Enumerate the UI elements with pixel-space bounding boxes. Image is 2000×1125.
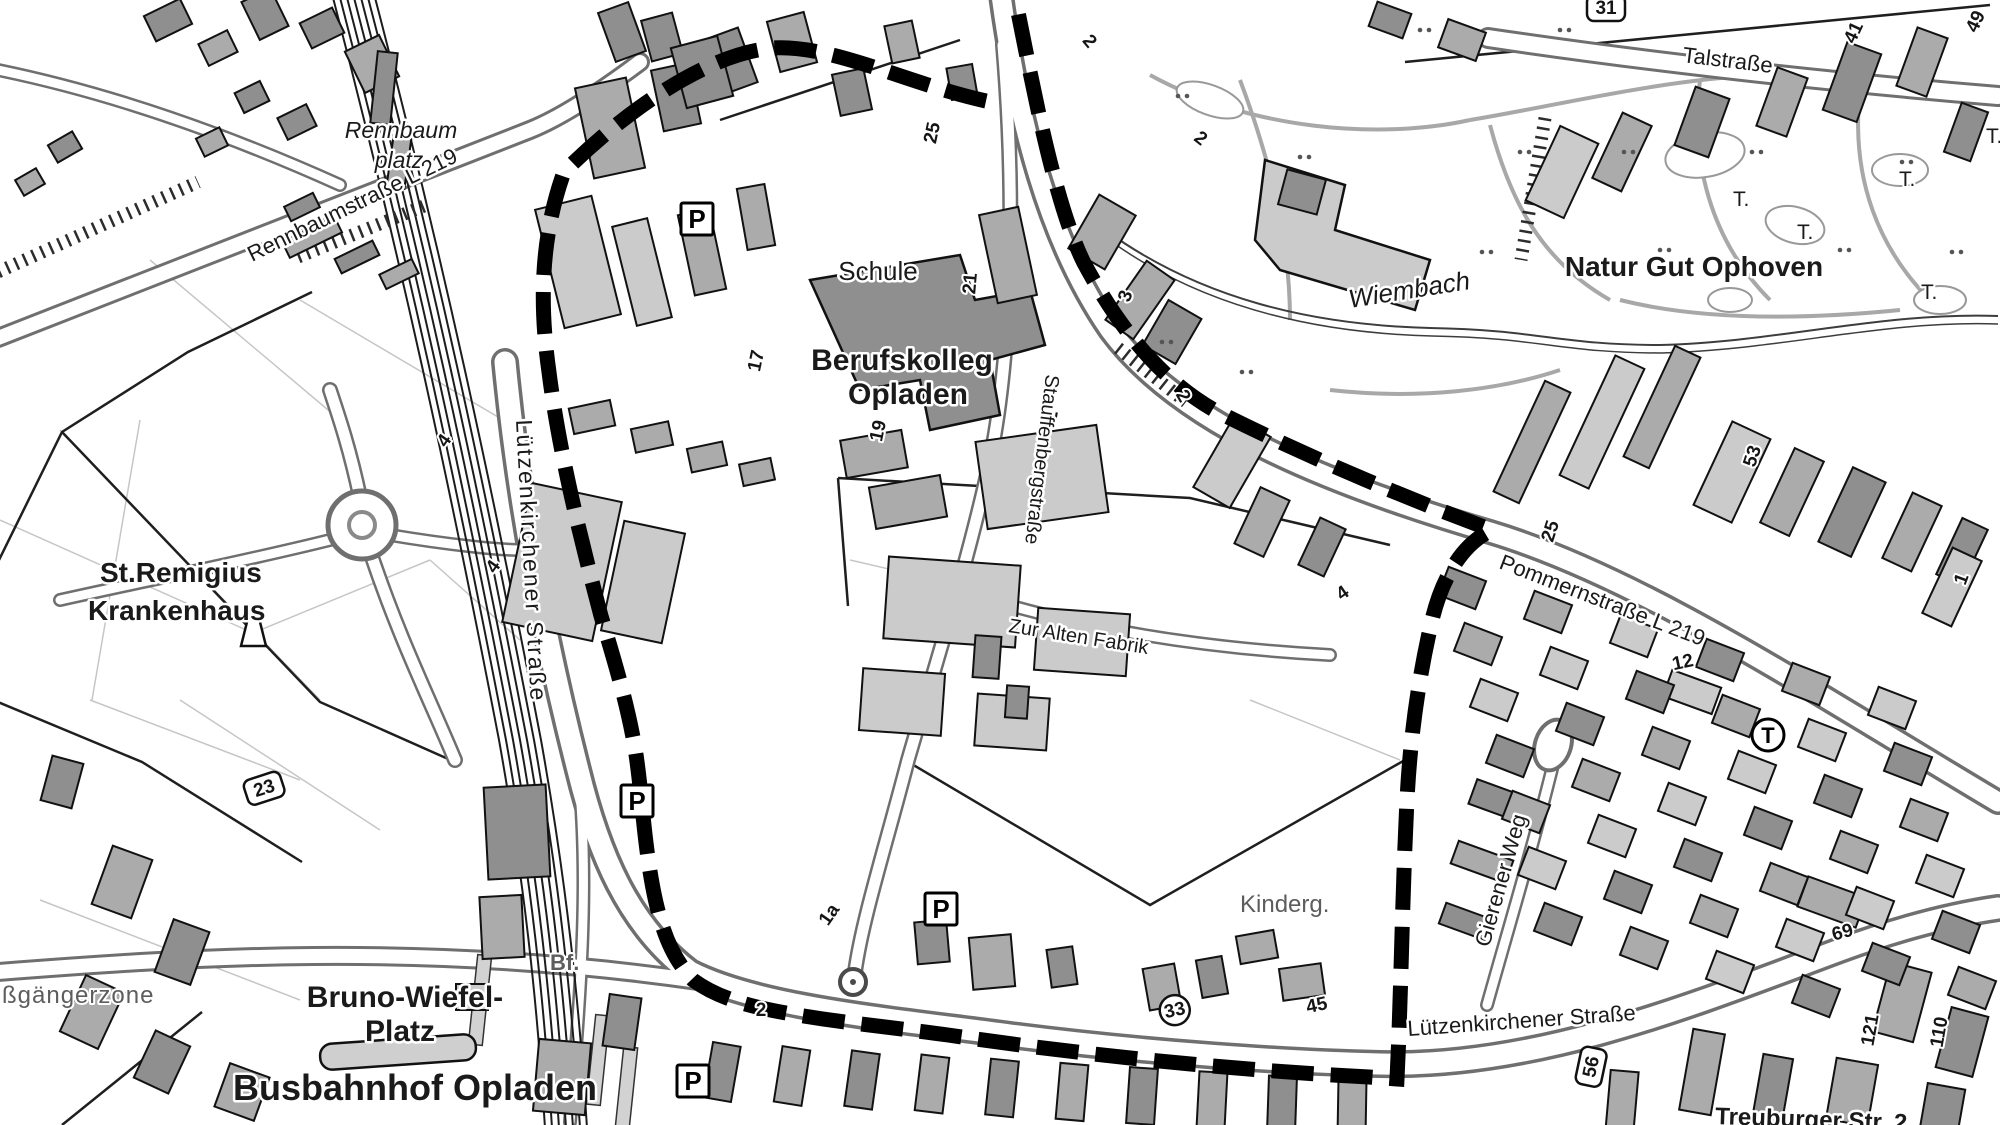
- building: [1267, 1076, 1297, 1125]
- label-fussgaengerzone: ßgängerzone: [2, 982, 154, 1009]
- label-bruno-wiefel-2: Platz: [365, 1015, 435, 1048]
- label-bahnhof: Bf.: [550, 950, 579, 975]
- building: [1196, 956, 1228, 998]
- tree-dot: [1631, 150, 1636, 155]
- label-rennbaumplatz-1: Rennbaum: [345, 117, 458, 143]
- parking-letter: P: [684, 1066, 701, 1096]
- roundabout-mini: [840, 969, 866, 995]
- label-kindergarten: Kinderg.: [1240, 891, 1329, 918]
- tree-dot: [1759, 150, 1764, 155]
- house-number-text: 19: [866, 418, 891, 443]
- tree-dot: [1950, 250, 1955, 255]
- tree-dot: [1176, 94, 1181, 99]
- building: [1197, 1071, 1228, 1125]
- parking-icon: P: [621, 785, 653, 817]
- tram-stop-letter: T: [1761, 723, 1775, 748]
- building: [1605, 1070, 1638, 1125]
- house-number-text: 21: [959, 272, 982, 295]
- building: [883, 556, 1020, 647]
- house-number-text: 33: [1162, 998, 1187, 1023]
- building: [1056, 1063, 1089, 1121]
- house-number: 21: [959, 272, 982, 295]
- tree-dot: [1489, 250, 1494, 255]
- house-number-text: 56: [1579, 1054, 1604, 1079]
- building: [969, 934, 1015, 989]
- house-number: 31: [1587, 0, 1625, 21]
- tree-dot: [1298, 155, 1303, 160]
- label-bruno-wiefel-1: Bruno-Wiefel-: [307, 981, 503, 1014]
- label-busbahnhof: Busbahnhof Opladen: [233, 1067, 597, 1108]
- building: [484, 784, 551, 879]
- tree-dot: [1307, 155, 1312, 160]
- tree-dot: [1622, 150, 1627, 155]
- house-number: 12: [1670, 650, 1695, 675]
- label-berufskolleg-2: Opladen: [848, 378, 968, 411]
- parking-icon: P: [677, 1065, 709, 1097]
- tree-dot: [1169, 340, 1174, 345]
- tree-dot: [1427, 28, 1432, 33]
- tree-dot: [1838, 248, 1843, 253]
- tree-dot: [1249, 370, 1254, 375]
- label-berufskolleg-1: Berufskolleg: [811, 344, 993, 377]
- map-viewport: 2517192132222444255311241491a26945121110…: [0, 0, 2000, 1125]
- building: [479, 895, 524, 959]
- building: [973, 635, 1002, 679]
- tree-dot: [1909, 160, 1914, 165]
- roundabout-large: [328, 491, 396, 559]
- building: [915, 1055, 950, 1114]
- parking-letter: P: [932, 894, 949, 924]
- tree-dot: [1847, 248, 1852, 253]
- building: [985, 1059, 1019, 1118]
- label-schule: Schule: [838, 256, 918, 286]
- tree-mark: T.: [1921, 281, 1937, 304]
- tram-stop-icon: T: [1752, 719, 1784, 751]
- label-st-remigius-1: St.Remigius: [100, 557, 262, 588]
- tree-dot: [1480, 250, 1485, 255]
- parking-icon: P: [925, 893, 957, 925]
- tree-dot: [1558, 28, 1563, 33]
- building: [1046, 946, 1077, 987]
- tree-dot: [1240, 370, 1245, 375]
- city-map: 2517192132222444255311241491a26945121110…: [0, 0, 2000, 1125]
- tree-mark: T.: [1986, 125, 2000, 148]
- house-number: 19: [866, 418, 891, 443]
- house-number-text: 2: [756, 1000, 767, 1021]
- tree-dot: [1418, 28, 1423, 33]
- tree-dot: [1567, 28, 1572, 33]
- house-number-text: 12: [1670, 650, 1695, 675]
- building: [1919, 1083, 1965, 1125]
- tree-mark: T.: [1797, 221, 1813, 244]
- tree-dot: [1527, 150, 1532, 155]
- building: [1005, 685, 1029, 718]
- parking-letter: P: [688, 204, 705, 234]
- tree-mark: T.: [1899, 168, 1915, 191]
- tree-dot: [1185, 94, 1190, 99]
- parking-icon: P: [681, 203, 713, 235]
- house-number-text: 31: [1595, 0, 1617, 19]
- building: [1126, 1067, 1158, 1125]
- building: [859, 668, 945, 736]
- building: [1236, 930, 1278, 964]
- house-number: 17: [744, 348, 769, 373]
- tree-mark: T.: [1733, 188, 1749, 211]
- building: [1338, 1080, 1367, 1125]
- tree-dot: [1750, 150, 1755, 155]
- label-st-remigius-2: Krankenhaus: [88, 595, 265, 626]
- house-number-text: 17: [744, 348, 769, 373]
- tree-dot: [1160, 340, 1165, 345]
- parking-letter: P: [628, 786, 645, 816]
- house-number: 2: [756, 1000, 767, 1021]
- tree-dot: [1518, 150, 1523, 155]
- tree-dot: [1900, 160, 1905, 165]
- building: [603, 994, 642, 1050]
- tree-dot: [1959, 250, 1964, 255]
- label-natur-gut-ophoven: Natur Gut Ophoven: [1565, 251, 1823, 282]
